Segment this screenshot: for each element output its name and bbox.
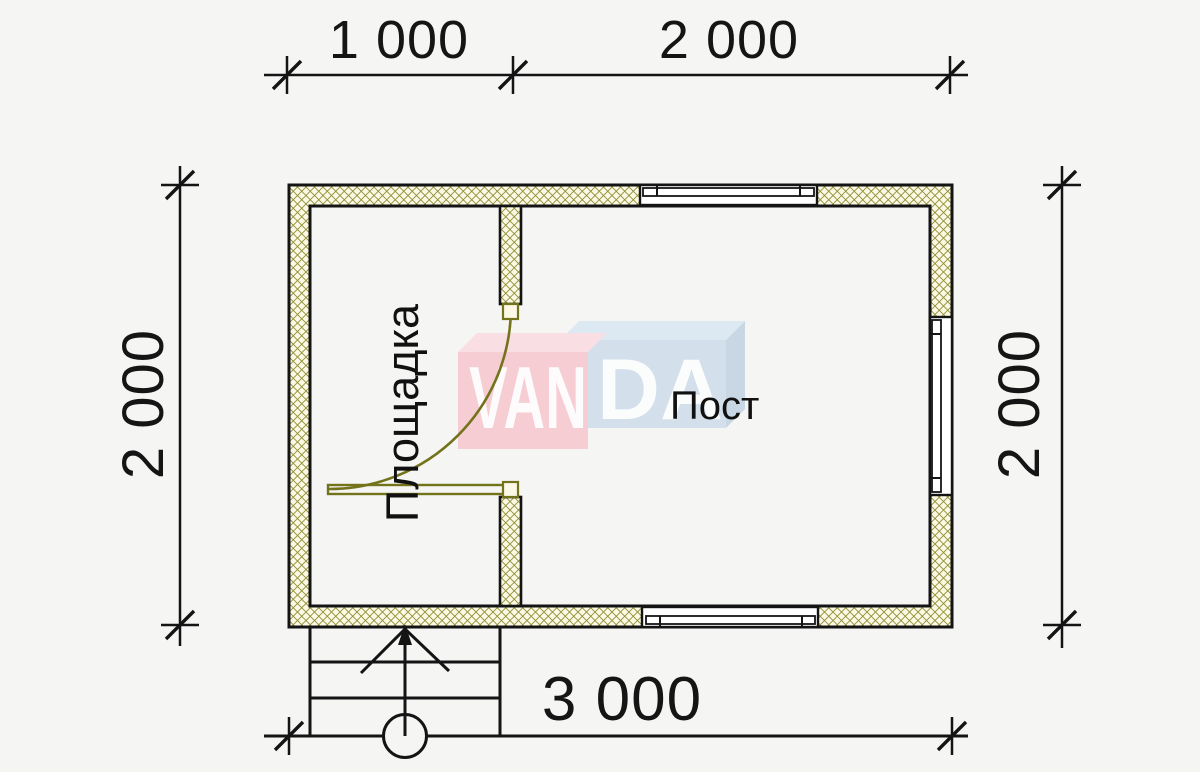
room-label-post: Пост xyxy=(670,386,759,426)
dimension-label-bottom: 3 000 xyxy=(522,669,722,731)
door-jamb-top xyxy=(503,304,518,319)
dimension-label-top-second: 2 000 xyxy=(629,13,829,67)
window-right xyxy=(930,317,952,495)
floor-plan-page: VAN DA xyxy=(0,0,1200,772)
room-label-platform: Площадка xyxy=(380,273,432,553)
dimension-label-top-first: 1 000 xyxy=(299,13,499,67)
dimension-label-left: 2 000 xyxy=(115,294,179,514)
window-top xyxy=(640,185,817,205)
stair-direction-arrow xyxy=(361,624,449,736)
window-bottom xyxy=(642,607,818,627)
dimension-label-right: 2 000 xyxy=(991,294,1055,514)
door-jamb-bottom xyxy=(503,482,518,497)
